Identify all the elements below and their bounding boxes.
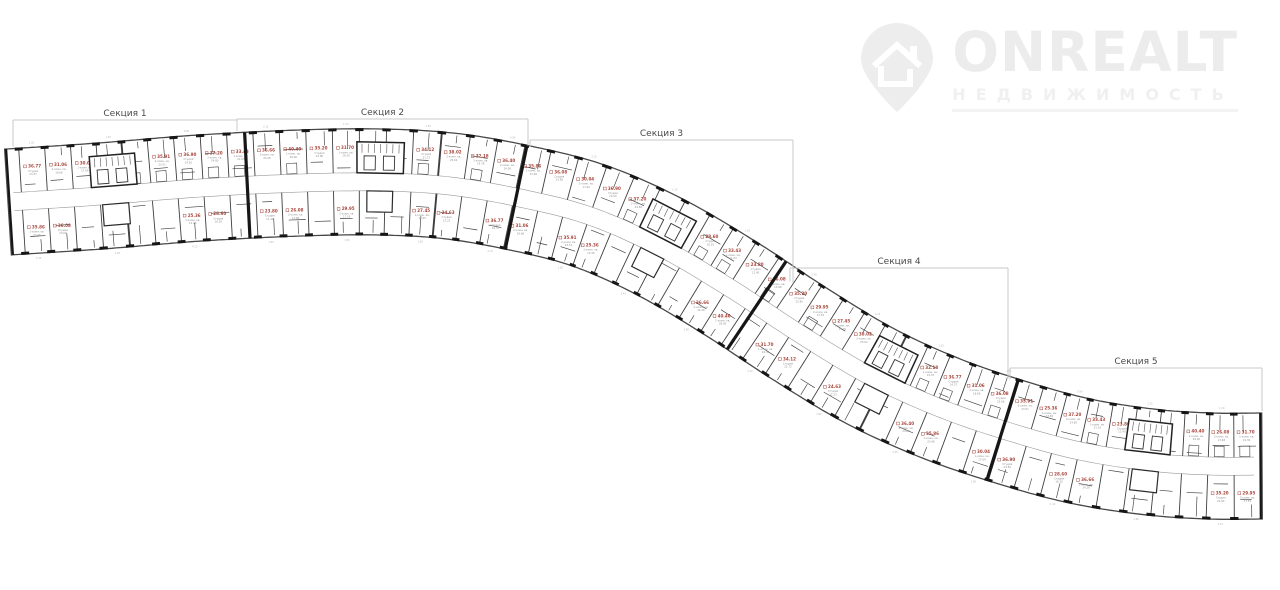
window-pier (570, 264, 576, 266)
dimension-label: 1.80 (816, 413, 822, 416)
section-label-2: Секция 2 (361, 108, 404, 118)
dimension-label: 2.15 (591, 155, 597, 158)
core-lower-block (103, 203, 131, 226)
unit-subarea-label: 24.37 (950, 383, 958, 387)
unit-subarea-label: 23.68 (59, 231, 67, 235)
unit-area-label: 24.63 (442, 210, 455, 215)
window-pier (1040, 387, 1047, 389)
unit-area-label: 36.08 (58, 223, 71, 228)
dimension-label: 2.80 (684, 328, 690, 331)
unit-area-label: 40.40 (1191, 429, 1204, 434)
window-pier (452, 239, 459, 240)
unit-area-label: 32.18 (925, 365, 938, 370)
unit-subarea-label: 17.64 (978, 457, 986, 461)
unit-subarea-label: 28.00 (290, 155, 298, 159)
core-lower-block (367, 191, 393, 213)
dimension-label: 2.80 (418, 241, 424, 244)
unit-area-label: 40.40 (288, 147, 301, 152)
window-pier (15, 149, 23, 150)
unit-area-label: 27.45 (837, 319, 850, 324)
window-pier (178, 241, 186, 242)
unit-area-label: 30.04 (581, 177, 594, 182)
window-pier (73, 250, 81, 251)
unit-subarea-label: 18.66 (517, 231, 525, 235)
dimension-label: 2.15 (875, 313, 881, 316)
unit-area-label: 35.91 (564, 235, 577, 240)
dimension-label: 1.80 (268, 241, 274, 244)
unit-area-label: 31.06 (972, 383, 985, 388)
unit-area-label: 31.70 (1242, 430, 1255, 435)
unit-subarea-label: 24.37 (29, 172, 37, 176)
unit-subarea-label: 23.68 (556, 178, 564, 182)
logo-underline (952, 109, 1238, 112)
dimension-label: 4.10 (747, 370, 753, 373)
unit-subarea-label: 12.96 (587, 251, 595, 255)
window-pier (1110, 404, 1117, 405)
unit-area-label: 36.77 (949, 374, 962, 379)
unit-area-label: 31.70 (761, 342, 774, 347)
unit-subarea-label: 24.00 (504, 166, 512, 170)
dimension-label: 0.90 (1077, 391, 1083, 394)
unit-subarea-label: 21.72 (784, 365, 792, 369)
unit-subarea-label: 18.66 (973, 391, 981, 395)
unit-area-label: 23.80 (265, 209, 278, 214)
unit-area-label: 28.60 (1054, 471, 1067, 476)
unit-area-label: 35.91 (1020, 399, 1033, 404)
unit-subarea-label: 17.64 (582, 185, 590, 189)
unit-area-label: 36.66 (696, 300, 709, 305)
unit-area-label: 36.90 (1002, 457, 1015, 462)
unit-area-label: 36.08 (554, 169, 567, 174)
unit-area-label: 36.66 (1081, 477, 1094, 482)
building-outline (5, 129, 1263, 520)
window-pier (1146, 514, 1155, 515)
dimension-label: 3.45 (36, 257, 42, 260)
unit-area-label: 35.91 (157, 154, 170, 159)
unit-subarea-label: 19.78 (477, 162, 485, 166)
unit-area-label: 26.08 (1216, 430, 1229, 435)
unit-area-label: 30.04 (977, 449, 990, 454)
unit-area-label: 36.77 (491, 218, 504, 223)
unit-subarea-label: 15.05 (418, 216, 426, 220)
logo-pin-icon (854, 22, 940, 114)
dimension-label: 1.20 (1219, 407, 1225, 410)
dimension-label: 3.45 (1218, 523, 1224, 526)
window-pier (21, 253, 29, 254)
unit-subarea-label: 15.05 (839, 327, 847, 331)
logo-text-block: ONREALT НЕДВИЖИМОСТЬ (952, 25, 1238, 112)
window-pier (1036, 494, 1044, 496)
unit-subarea-label: 22.80 (316, 154, 324, 158)
unit-area-label: 36.08 (996, 391, 1009, 396)
unit-subarea-label: 17.55 (817, 313, 825, 317)
unit-subarea-label: 12.23 (443, 218, 451, 222)
unit-area-label: 37.20 (1068, 412, 1081, 417)
dimension-label: 1.80 (1134, 518, 1140, 521)
unit-area-label: 36.77 (28, 164, 41, 169)
unit-area-label: 33.43 (728, 248, 741, 253)
unit-area-label: 35.86 (926, 431, 939, 436)
unit-area-label: 26.08 (291, 208, 304, 213)
unit-area-label: 35.86 (32, 225, 45, 230)
dimension-label: 4.10 (192, 246, 198, 249)
window-pier (169, 137, 177, 138)
unit-subarea-label: 23.51 (158, 162, 166, 166)
unit-area-label: 29.95 (816, 305, 829, 310)
unit-area-label: 27.45 (417, 208, 430, 213)
unit-subarea-label: 24.00 (902, 429, 910, 433)
unit-subarea-label: 23.51 (1021, 407, 1029, 411)
window-pier (1064, 393, 1071, 395)
logo-brand-text: ONREALT (952, 25, 1238, 80)
unit-subarea-label: 19.30 (762, 350, 770, 354)
dimension-label: 1.50 (745, 230, 751, 233)
unit-subarea-label: 16.20 (1055, 480, 1063, 484)
unit-subarea-label: 24.50 (609, 194, 617, 198)
dimension-label: 1.50 (1006, 370, 1012, 373)
unit-subarea-label: 24.50 (1004, 465, 1012, 469)
dimension-label: 3.45 (892, 451, 898, 454)
window-pier (47, 251, 55, 252)
unit-subarea-label: 11.40 (752, 270, 760, 274)
unit-subarea-label: 19.30 (1243, 438, 1251, 442)
unit-subarea-label: 23.46 (33, 233, 41, 237)
unit-area-label: 34.12 (783, 356, 796, 361)
unit-area-label: 25.36 (586, 243, 599, 248)
dimension-label: 1.20 (29, 141, 35, 144)
unit-area-label: 36.90 (608, 186, 621, 191)
dimension-label: 2.15 (263, 125, 269, 128)
window-pier (1134, 407, 1142, 408)
window-pier (126, 246, 134, 247)
window-pier (429, 236, 436, 237)
unit-subarea-label: 12.96 (189, 221, 197, 225)
unit-subarea-label: 11.40 (266, 217, 274, 221)
window-pier (66, 146, 74, 147)
unit-area-label: 35.20 (794, 291, 807, 296)
unit-subarea-label: 16.20 (707, 242, 715, 246)
window-pier (476, 243, 483, 244)
unit-subarea-label: 12.96 (1046, 414, 1054, 418)
unit-area-label: 35.20 (315, 146, 328, 151)
unit-area-label: 36.90 (183, 152, 196, 157)
window-pier (228, 238, 236, 239)
unit-subarea-label: 23.51 (565, 243, 573, 247)
dimension-label: 4.10 (487, 250, 493, 253)
window-pier (547, 150, 555, 152)
unit-area-label: 31.70 (341, 145, 354, 150)
window-pier (118, 142, 126, 143)
window-pier (1064, 501, 1073, 503)
unit-subarea-label: 17.55 (343, 215, 351, 219)
unit-area-label: 35.86 (528, 164, 541, 169)
unit-area-label: 36.40 (901, 421, 914, 426)
section-label-3: Секция 3 (640, 129, 683, 139)
section-label-1: Секция 1 (103, 109, 146, 119)
dimension-label: 1.20 (343, 123, 349, 126)
dimension-label: 0.90 (184, 130, 190, 133)
unit-subarea-label: 23.68 (997, 399, 1005, 403)
unit-subarea-label: 11.40 (1118, 430, 1126, 434)
section-label-5: Секция 5 (1114, 357, 1157, 367)
unit-subarea-label: 19.78 (927, 373, 935, 377)
unit-subarea-label: 13.68 (774, 285, 782, 289)
unit-subarea-label: 21.03 (1094, 426, 1102, 430)
unit-subarea-label: 28.00 (719, 322, 727, 326)
unit-subarea-label: 22.80 (795, 299, 803, 303)
unit-area-label: 24.63 (828, 384, 841, 389)
window-pier (196, 135, 204, 136)
window-pier (525, 252, 532, 254)
section-label-4: Секция 4 (877, 257, 921, 267)
window-pier (143, 139, 151, 140)
unit-area-label: 25.36 (188, 213, 201, 218)
window-pier (548, 258, 555, 260)
unit-subarea-label: 24.26 (697, 308, 705, 312)
dimension-label: 0.90 (811, 273, 817, 276)
dimension-label: 1.50 (425, 125, 431, 128)
dimension-label: 1.20 (672, 189, 678, 192)
unit-subarea-label: 18.66 (55, 170, 63, 174)
unit-subarea-label: 21.72 (423, 155, 431, 159)
logo-sub-text: НЕДВИЖИМОСТЬ (952, 87, 1234, 103)
unit-subarea-label: 19.30 (342, 154, 350, 158)
floorplan-page: ONREALT НЕДВИЖИМОСТЬ 36.77Студия24.3735.… (0, 0, 1280, 590)
dimension-label: 1.20 (938, 345, 944, 348)
window-pier (1158, 410, 1165, 411)
unit-subarea-label: 24.26 (263, 156, 271, 160)
unit-area-label: 35.20 (1216, 491, 1229, 496)
unit-subarea-label: 12.23 (829, 392, 837, 396)
window-pier (466, 135, 475, 136)
dimension-label: 2.80 (115, 252, 121, 255)
window-pier (100, 248, 108, 249)
unit-subarea-label: 25.62 (860, 340, 868, 344)
unit-subarea-label: 23.46 (530, 172, 538, 176)
dimension-label: 2.15 (1147, 403, 1153, 406)
unit-subarea-label: 17.55 (1244, 499, 1252, 503)
unit-area-label: 36.66 (262, 148, 275, 153)
unit-area-label: 33.43 (1092, 417, 1105, 422)
unit-area-label: 28.60 (705, 234, 718, 239)
dimension-label: 1.80 (558, 266, 564, 269)
window-pier (203, 240, 211, 241)
onrealt-logo: ONREALT НЕДВИЖИМОСТЬ (854, 22, 1238, 114)
window-pier (41, 147, 49, 148)
dimension-label: 4.10 (1050, 503, 1056, 506)
unit-area-label: 34.12 (421, 147, 434, 152)
dimension-label: 1.50 (106, 136, 112, 139)
unit-area-label: 29.95 (342, 206, 355, 211)
window-pier (1092, 506, 1101, 508)
unit-subarea-label: 24.37 (492, 226, 500, 230)
unit-area-label: 40.40 (718, 313, 731, 318)
unit-subarea-label: 28.00 (1193, 437, 1201, 441)
end-wall (1260, 413, 1261, 519)
unit-area-label: 32.18 (476, 153, 489, 158)
unit-area-label: 37.20 (210, 150, 223, 155)
core-outline (1125, 419, 1173, 455)
unit-subarea-label: 24.50 (185, 160, 193, 164)
unit-subarea-label: 23.46 (927, 439, 935, 443)
window-pier (1175, 517, 1184, 518)
unit-subarea-label: 13.68 (292, 216, 300, 220)
dimension-label: 2.80 (971, 480, 977, 483)
unit-subarea-label: 24.80 (211, 159, 219, 163)
unit-subarea-label: 21.03 (237, 157, 245, 161)
window-pier (494, 140, 502, 142)
unit-subarea-label: 17.64 (81, 169, 89, 173)
unit-area-label: 25.36 (1044, 406, 1057, 411)
window-pier (92, 144, 100, 145)
dimension-label: 0.90 (510, 136, 516, 139)
unit-area-label: 28.60 (213, 211, 226, 216)
unit-area-label: 36.40 (502, 158, 515, 163)
unit-subarea-label: 22.80 (1217, 499, 1225, 503)
window-pier (152, 243, 160, 244)
dimension-label: 3.45 (621, 293, 627, 296)
dimension-label: 3.45 (344, 239, 350, 242)
unit-subarea-label: 16.20 (215, 220, 223, 224)
window-pier (1087, 399, 1094, 401)
unit-subarea-label: 25.62 (450, 158, 458, 162)
unit-subarea-label: 24.80 (635, 205, 643, 209)
unit-area-label: 38.02 (859, 332, 872, 337)
unit-area-label: 29.95 (1242, 491, 1255, 496)
unit-subarea-label: 21.03 (729, 256, 737, 260)
window-pier (1119, 511, 1127, 512)
unit-area-label: 23.80 (751, 262, 764, 267)
window-pier (438, 132, 447, 133)
unit-area-label: 31.06 (516, 223, 529, 228)
unit-area-label: 38.02 (449, 150, 462, 155)
core-lower-block (1130, 469, 1159, 493)
unit-subarea-label: 13.68 (1218, 438, 1226, 442)
unit-subarea-label: 24.80 (1070, 420, 1078, 424)
unit-area-label: 31.06 (54, 162, 67, 167)
unit-area-label: 37.20 (633, 197, 646, 202)
unit-subarea-label: 24.26 (1082, 486, 1090, 490)
